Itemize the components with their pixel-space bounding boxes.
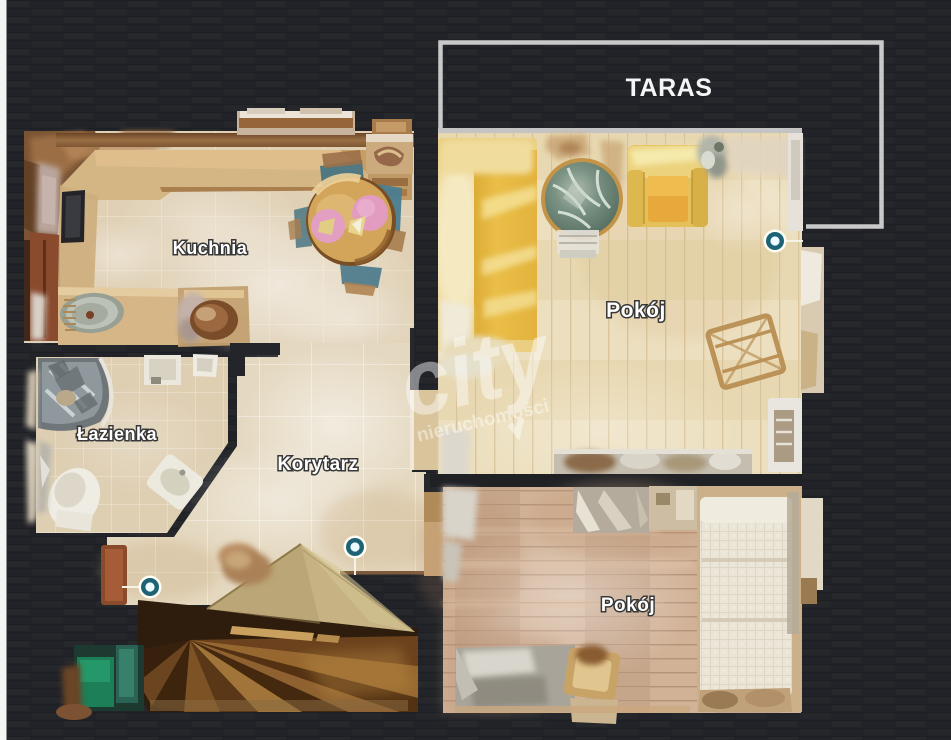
svg-text:Pokój: Pokój	[606, 299, 666, 322]
svg-text:Kuchnia: Kuchnia	[173, 238, 248, 258]
svg-text:Łazienka: Łazienka	[77, 424, 158, 444]
svg-text:Korytarz: Korytarz	[277, 454, 358, 475]
svg-text:Pokój: Pokój	[601, 595, 655, 616]
svg-text:TARAS: TARAS	[626, 74, 713, 102]
